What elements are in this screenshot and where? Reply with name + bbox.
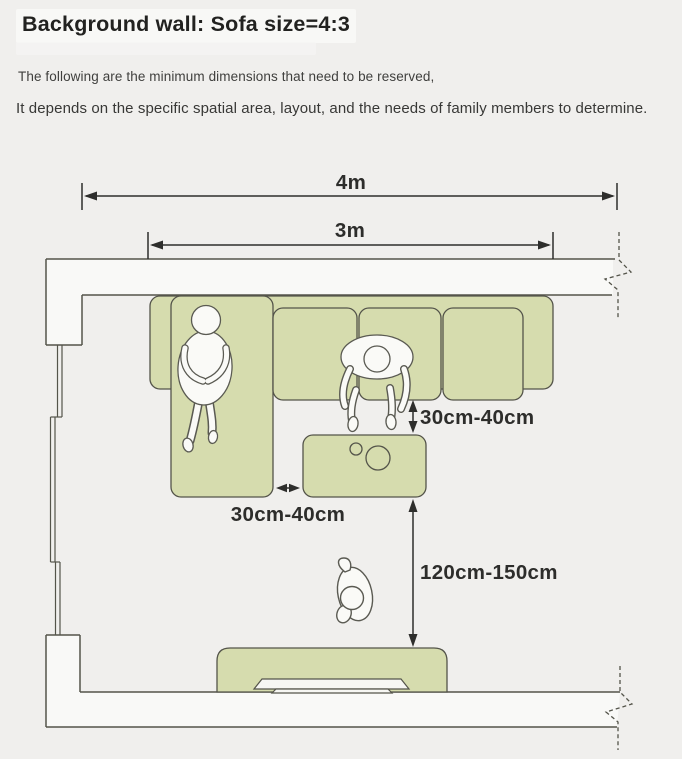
sofa-to-table-label: 30cm-40cm — [420, 406, 534, 429]
dimension-sofa-width: 3m — [148, 219, 553, 259]
tv — [254, 679, 409, 693]
dimension-sofa-to-table: 30cm-40cm — [409, 400, 535, 433]
table-to-tv-label: 120cm-150cm — [420, 561, 558, 584]
sofa-cushion-3 — [443, 308, 523, 400]
sofa-width-label: 3m — [335, 219, 365, 242]
chaise-to-table-label: 30cm-40cm — [231, 503, 345, 526]
floor-plan-diagram: 4m 3m — [0, 0, 682, 759]
room-width-label: 4m — [336, 171, 366, 194]
dimension-table-to-tv: 120cm-150cm — [409, 499, 558, 647]
dimension-room-width: 4m — [82, 171, 617, 210]
coffee-table — [303, 435, 426, 497]
person-walking-icon — [333, 558, 377, 625]
wall-left-window — [51, 345, 63, 635]
